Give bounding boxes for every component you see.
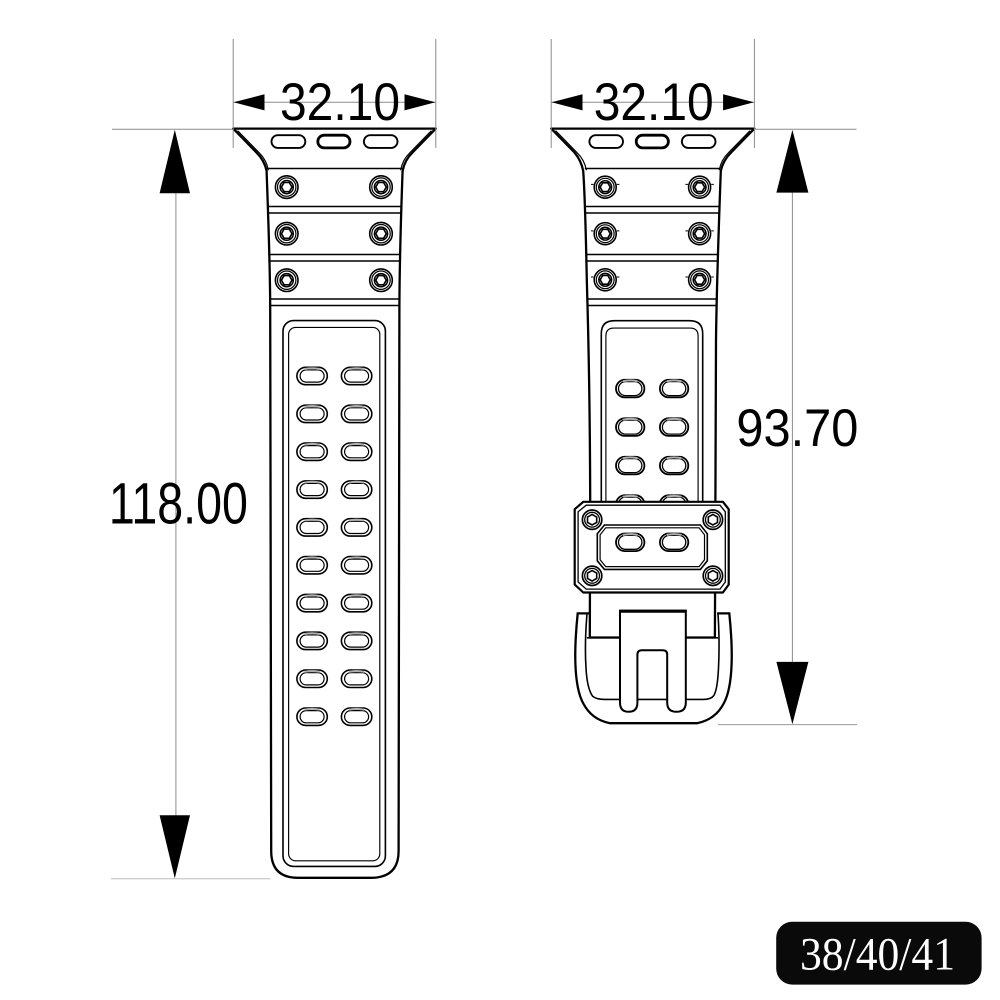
svg-text:32.10: 32.10	[594, 73, 714, 132]
svg-text:38/40/41: 38/40/41	[800, 929, 955, 981]
svg-text:32.10: 32.10	[280, 73, 400, 132]
svg-text:118.00: 118.00	[109, 471, 248, 536]
svg-text:93.70: 93.70	[736, 399, 858, 458]
